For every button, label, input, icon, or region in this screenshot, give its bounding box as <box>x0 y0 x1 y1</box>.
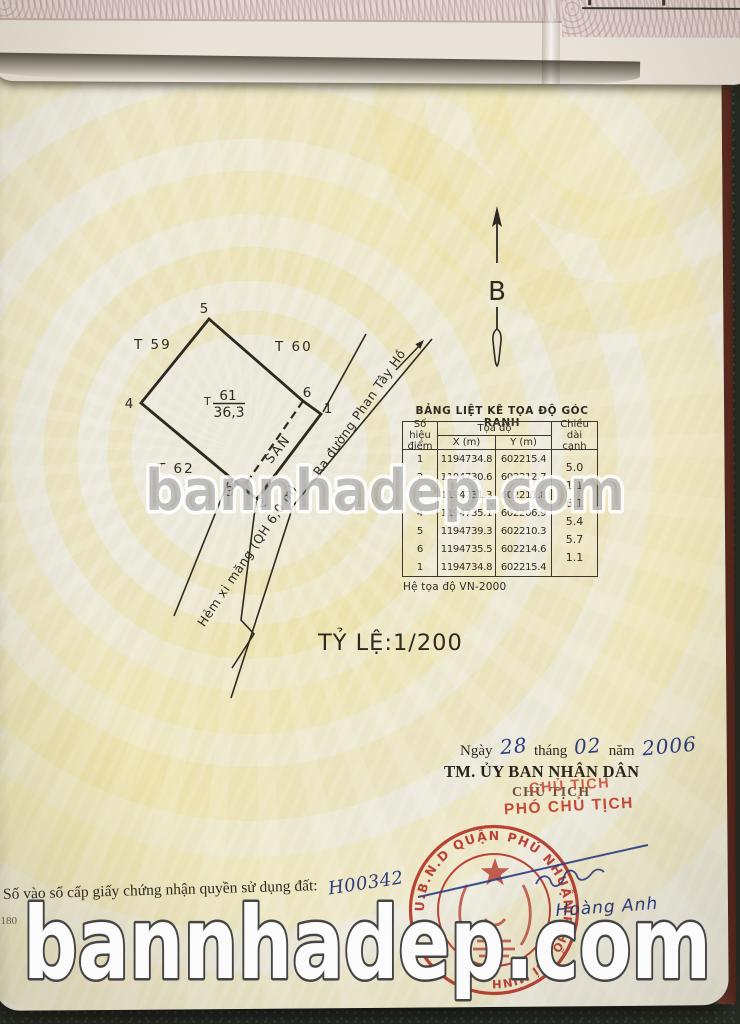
scale-label: TỶ LỆ:1/200 <box>317 627 463 656</box>
registry-number-handwritten: H00342 <box>326 867 404 899</box>
north-arrow-nib <box>493 329 501 366</box>
table-cell-y: 602206.9 <box>496 504 551 522</box>
table-cell-y: 602212.7 <box>496 468 551 486</box>
table-cell-x: 1194735.1 <box>438 504 496 522</box>
col-header-point: Số hiệu điểm <box>403 422 438 450</box>
edge-length: 6.1 <box>552 498 597 510</box>
plot-number: 61 <box>219 388 236 404</box>
coordinate-table: Số hiệu điểm Tọa độ X (m) Y (m) Chiều dà… <box>402 421 598 577</box>
stamp-emblem-marks <box>460 885 531 956</box>
handwritten-year: 2006 <box>641 732 698 761</box>
table-cell-point: 1 <box>403 558 438 576</box>
plot-prefix: T <box>203 395 211 408</box>
official-stamp: U.B.N.D QUẬN PHÚ NHUẬN TP. HỒ CHÍ MINH <box>407 823 581 997</box>
handwritten-day: 28 <box>499 733 528 759</box>
north-arrow: B <box>488 206 506 366</box>
alley-label: Hẻm xi măng (QH 6,0 m) <box>194 482 300 629</box>
table-cell-point: 4 <box>403 504 438 522</box>
neighbor-label-t62: T 62 <box>156 461 195 477</box>
handwritten-month: 02 <box>573 733 602 759</box>
plot-area: 36,3 <box>213 405 244 421</box>
table-cell-y: 602215.4 <box>496 558 551 576</box>
table-cell-y: 602211.8 <box>496 486 551 504</box>
col-header-coords: Tọa độ <box>438 422 551 436</box>
table-cell-point: 5 <box>403 522 438 540</box>
edge-length: 5.4 <box>552 516 597 528</box>
vertex-label-3: 3 <box>226 484 235 500</box>
table-cell-x: 1194735.5 <box>438 540 496 558</box>
corner-code: 0180 <box>0 915 17 927</box>
vertex-label-2: 2 <box>255 494 269 512</box>
table-cell-x: 1194734.8 <box>438 558 496 576</box>
cadastral-map: T 59 T 60 T 62 T 61 36,3 5 4 3 2 1 6 SÂN… <box>0 0 740 720</box>
edge-length-column: 5.0 1.1 6.1 5.4 5.7 1.1 <box>551 450 597 576</box>
neighbor-label-t60: T 60 <box>274 339 313 355</box>
col-header-x: X (m) <box>438 436 496 450</box>
year-word: năm <box>609 743 635 760</box>
stamp-outer-ring <box>411 827 578 994</box>
vertex-label-5: 5 <box>200 301 209 317</box>
table-cell-y: 602215.4 <box>496 450 551 468</box>
table-frame-fragment <box>582 0 740 10</box>
table-cell-x: 1194739.3 <box>438 522 496 540</box>
edge-length: 5.7 <box>552 534 597 546</box>
vertex-label-1: 1 <box>324 401 333 417</box>
table-cell-point: 2 <box>403 468 438 486</box>
table-cell-point: 1 <box>403 450 438 468</box>
edge-length: 5.0 <box>552 462 597 474</box>
registry-line: Số vào sổ cấp giấy chứng nhận quyền sử d… <box>3 871 433 904</box>
table-cell-x: 1194734.8 <box>438 450 496 468</box>
vertex-label-4: 4 <box>125 396 134 412</box>
table-cell-point: 3 <box>403 486 438 504</box>
month-word: tháng <box>534 743 567 760</box>
date-word: Ngày <box>460 743 493 760</box>
page-content: T 59 T 60 T 62 T 61 36,3 5 4 3 2 1 6 SÂN… <box>0 0 740 1024</box>
north-label: B <box>488 277 506 307</box>
table-cell-point: 6 <box>403 540 438 558</box>
edge-length: 1.1 <box>552 552 597 564</box>
stamp-star-icon <box>481 858 510 885</box>
col-header-edge: Chiều dài cạnh <box>551 422 597 450</box>
table-cell-y: 602214.6 <box>496 540 551 558</box>
approval-date-line: Ngày 28 tháng 02 năm 2006 <box>460 736 696 760</box>
col-header-y: Y (m) <box>496 436 551 450</box>
registry-label: Số vào sổ cấp giấy chứng nhận quyền sử d… <box>3 877 318 903</box>
table-cell-x: 1194730.6 <box>438 468 496 486</box>
neighbor-label-t59: T 59 <box>133 337 172 353</box>
table-cell-y: 602210.3 <box>496 522 551 540</box>
vertex-label-6: 6 <box>303 385 312 401</box>
table-cell-x: 1194731.3 <box>438 486 496 504</box>
yard-label: SÂN <box>262 432 294 467</box>
coordinate-system-note: Hệ tọa độ VN-2000 <box>403 581 506 593</box>
edge-length: 1.1 <box>552 480 597 492</box>
photo-of-land-certificate: T 59 T 60 T 62 T 61 36,3 5 4 3 2 1 6 SÂN… <box>0 0 740 1024</box>
